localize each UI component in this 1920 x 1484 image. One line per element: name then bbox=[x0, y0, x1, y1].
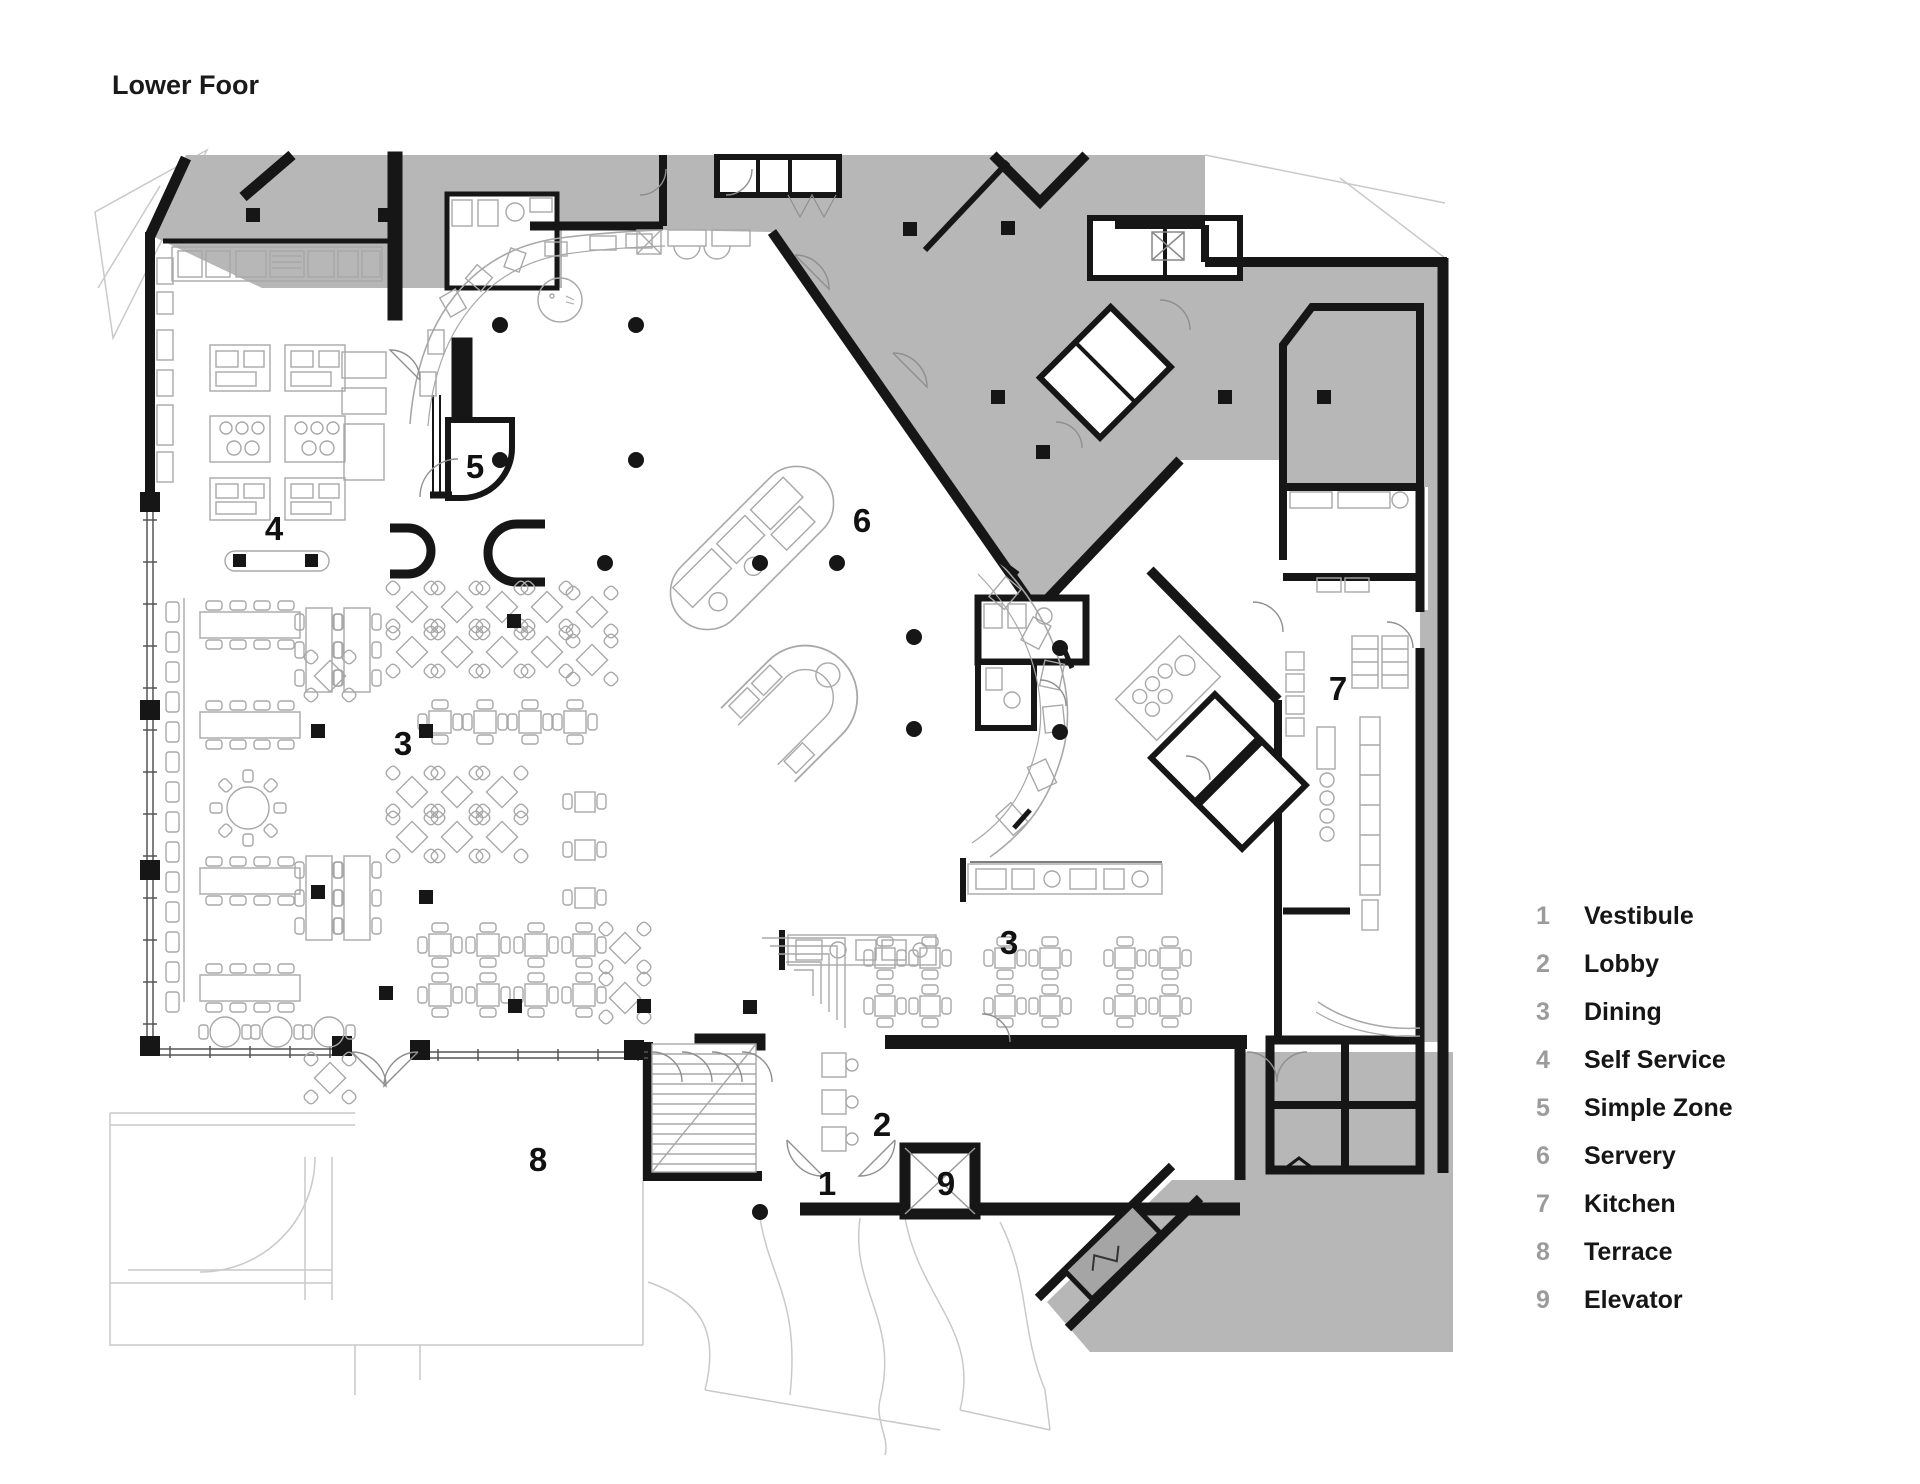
room-number-label: 9 bbox=[937, 1165, 955, 1202]
legend-item-label: Dining bbox=[1584, 998, 1662, 1027]
legend-item-label: Vestibule bbox=[1584, 902, 1694, 931]
legend-item-number: 2 bbox=[1536, 950, 1570, 979]
legend-item-number: 4 bbox=[1536, 1046, 1570, 1075]
legend-item-number: 9 bbox=[1536, 1286, 1570, 1315]
room-number-label: 2 bbox=[873, 1106, 891, 1143]
legend-item-label: Terrace bbox=[1584, 1238, 1673, 1267]
legend: 1Vestibule2Lobby3Dining4Self Service5Sim… bbox=[1536, 902, 1733, 1334]
legend-item-label: Simple Zone bbox=[1584, 1094, 1733, 1123]
legend-item-number: 3 bbox=[1536, 998, 1570, 1027]
room-number-label: 8 bbox=[529, 1141, 547, 1178]
room-number-label: 7 bbox=[1329, 670, 1347, 707]
legend-item-label: Elevator bbox=[1584, 1286, 1683, 1315]
legend-item: 1Vestibule bbox=[1536, 902, 1733, 950]
legend-item-number: 7 bbox=[1536, 1190, 1570, 1219]
floor-plan-sheet: Lower Foor bbox=[0, 0, 1920, 1484]
legend-item-label: Kitchen bbox=[1584, 1190, 1676, 1219]
legend-item: 8Terrace bbox=[1536, 1238, 1733, 1286]
legend-item-number: 8 bbox=[1536, 1238, 1570, 1267]
room-number-label: 5 bbox=[466, 448, 484, 485]
room-number-label: 4 bbox=[265, 510, 284, 547]
legend-item-label: Self Service bbox=[1584, 1046, 1726, 1075]
legend-item: 2Lobby bbox=[1536, 950, 1733, 998]
legend-item: 3Dining bbox=[1536, 998, 1733, 1046]
room-number-label: 1 bbox=[818, 1165, 836, 1202]
legend-item: 9Elevator bbox=[1536, 1286, 1733, 1334]
legend-item-number: 5 bbox=[1536, 1094, 1570, 1123]
legend-item-label: Lobby bbox=[1584, 950, 1659, 979]
room-number-label: 6 bbox=[853, 502, 871, 539]
legend-item: 7Kitchen bbox=[1536, 1190, 1733, 1238]
legend-item: 5Simple Zone bbox=[1536, 1094, 1733, 1142]
window-walls bbox=[143, 502, 1162, 1061]
legend-item-number: 6 bbox=[1536, 1142, 1570, 1171]
room-number-label: 3 bbox=[394, 725, 412, 762]
legend-item-number: 1 bbox=[1536, 902, 1570, 931]
room-number-label: 3 bbox=[1000, 924, 1018, 961]
legend-item: 6Servery bbox=[1536, 1142, 1733, 1190]
legend-item-label: Servery bbox=[1584, 1142, 1676, 1171]
legend-item: 4Self Service bbox=[1536, 1046, 1733, 1094]
